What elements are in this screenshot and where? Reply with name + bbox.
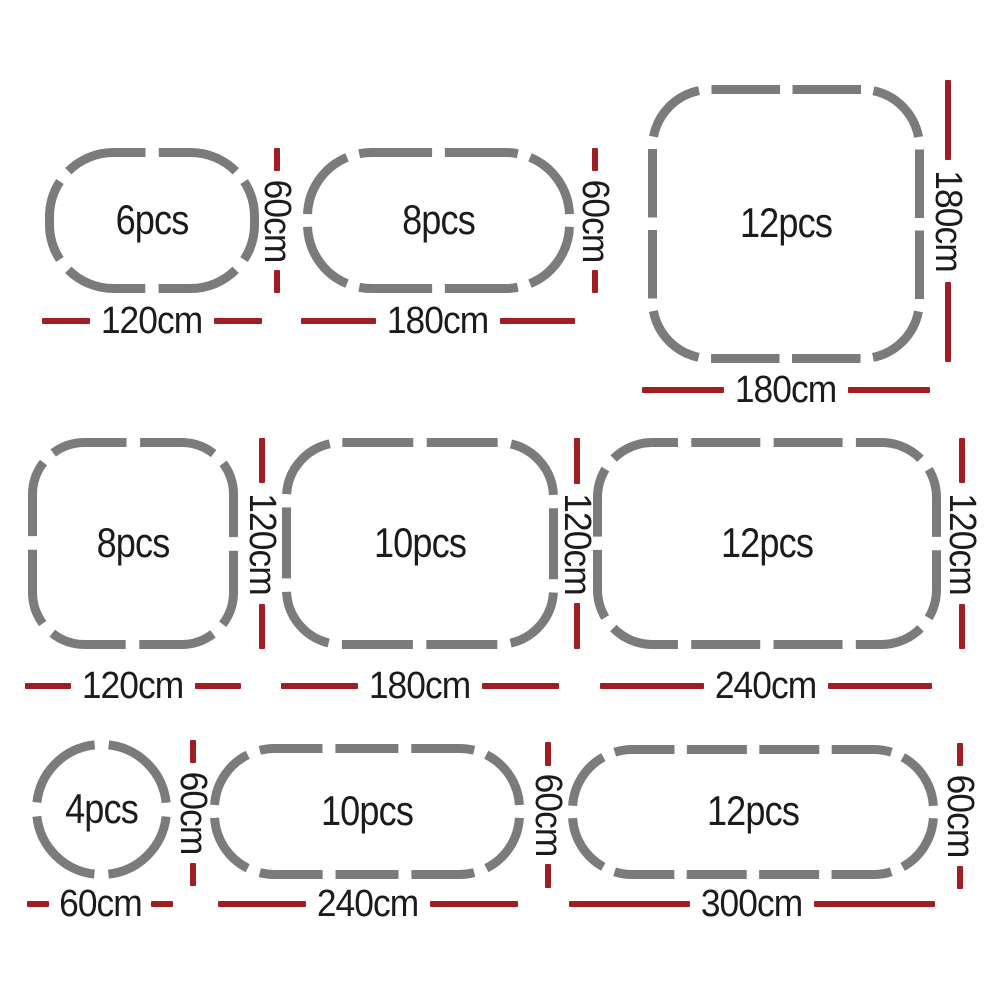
height-value-wrap: 180cm <box>926 160 970 282</box>
width-dimension: 60cm <box>20 885 180 923</box>
height-value-wrap: 60cm <box>171 763 215 863</box>
pieces-count-label: 10pcs <box>232 786 502 836</box>
height-value-wrap: 120cm <box>240 483 284 604</box>
width-dimension: 300cm <box>565 885 939 923</box>
dimension-line-right <box>195 683 241 689</box>
height-value: 60cm <box>529 774 567 857</box>
dimension-line-bottom <box>545 864 551 888</box>
dimension-line-right <box>430 901 518 907</box>
dimension-line-right <box>814 901 935 907</box>
height-dimension: 60cm <box>255 148 299 293</box>
height-value: 60cm <box>576 179 614 262</box>
dimension-line-left <box>600 683 704 689</box>
width-dimension: 120cm <box>40 302 264 340</box>
width-dimension: 120cm <box>18 667 248 705</box>
width-dimension: 240cm <box>213 885 523 923</box>
height-value: 180cm <box>929 170 967 271</box>
dimension-line-left <box>25 683 71 689</box>
width-dimension: 240cm <box>594 667 938 705</box>
height-value-wrap: 60cm <box>573 171 617 270</box>
height-dimension: 120cm <box>940 438 984 649</box>
height-value: 120cm <box>943 493 981 594</box>
height-dimension: 60cm <box>526 742 570 888</box>
dimension-line-left <box>301 318 376 324</box>
dimension-line-left <box>218 901 306 907</box>
dimension-line-right <box>151 901 173 907</box>
width-value: 120cm <box>82 667 183 705</box>
width-value: 300cm <box>701 885 802 923</box>
dimension-line-left <box>569 901 690 907</box>
dimension-line-right <box>828 683 932 689</box>
height-value: 60cm <box>941 775 979 858</box>
dimension-line-top <box>959 438 965 483</box>
dimension-line-top <box>545 742 551 766</box>
pieces-count-label: 12pcs <box>594 786 912 836</box>
dimension-line-bottom <box>259 604 265 649</box>
height-value-wrap: 60cm <box>255 171 299 270</box>
width-dimension: 180cm <box>275 667 565 705</box>
dimension-line-left <box>42 318 90 324</box>
height-value-wrap: 120cm <box>940 483 984 604</box>
dimension-line-bottom <box>592 270 598 293</box>
dimension-line-bottom <box>957 866 963 889</box>
dimension-line-top <box>945 80 951 160</box>
height-value-wrap: 60cm <box>526 766 570 864</box>
pieces-count-label: 12pcs <box>667 198 904 248</box>
pieces-count-label: 12pcs <box>617 518 916 568</box>
width-value: 240cm <box>317 885 418 923</box>
height-value-wrap: 60cm <box>938 766 982 866</box>
width-value: 240cm <box>715 667 816 705</box>
dimension-line-bottom <box>274 270 280 293</box>
dimension-line-top <box>592 148 598 171</box>
height-dimension: 180cm <box>926 80 970 362</box>
dimension-line-bottom <box>959 604 965 649</box>
width-value: 180cm <box>735 371 836 409</box>
width-dimension: 180cm <box>636 371 936 409</box>
pieces-count-label: 6pcs <box>60 195 244 245</box>
height-dimension: 120cm <box>240 438 284 649</box>
dimension-line-left <box>27 901 49 907</box>
pieces-count-label: 10pcs <box>301 518 538 568</box>
width-value: 60cm <box>59 885 142 923</box>
height-dimension: 60cm <box>573 148 617 293</box>
dimension-line-top <box>574 438 580 484</box>
playpen-configuration-diagram: 6pcs 120cm 60cm 8pcs 180cm 60cm <box>0 0 1000 1000</box>
dimension-line-top <box>259 438 265 483</box>
dimension-line-top <box>274 148 280 171</box>
height-value: 120cm <box>558 493 596 594</box>
width-value: 120cm <box>101 302 202 340</box>
height-value: 60cm <box>174 772 212 855</box>
dimension-line-bottom <box>945 282 951 362</box>
dimension-line-bottom <box>190 863 196 886</box>
dimension-line-right <box>482 683 559 689</box>
pieces-count-label: 4pcs <box>42 784 162 834</box>
width-value: 180cm <box>387 302 488 340</box>
dimension-line-left <box>642 387 724 393</box>
height-dimension: 60cm <box>938 743 982 889</box>
height-dimension: 60cm <box>171 740 215 886</box>
pieces-count-label: 8pcs <box>43 518 224 568</box>
dimension-line-top <box>190 740 196 763</box>
dimension-line-right <box>214 318 262 324</box>
height-value: 120cm <box>243 493 281 594</box>
dimension-line-top <box>957 743 963 766</box>
dimension-line-right <box>848 387 930 393</box>
width-dimension: 180cm <box>288 302 588 340</box>
dimension-line-right <box>500 318 575 324</box>
pieces-count-label: 8pcs <box>322 195 555 245</box>
height-value: 60cm <box>258 179 296 262</box>
dimension-line-left <box>281 683 358 689</box>
dimension-line-bottom <box>574 603 580 649</box>
width-value: 180cm <box>369 667 470 705</box>
